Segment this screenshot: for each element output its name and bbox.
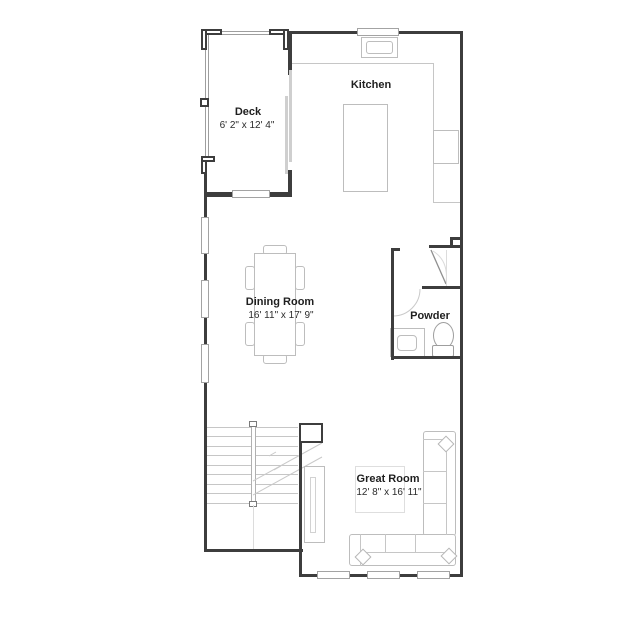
wall-deck-right-lower bbox=[288, 170, 292, 196]
window bbox=[201, 217, 209, 254]
tv-screen bbox=[310, 477, 316, 533]
sofa-cushion-line bbox=[423, 503, 446, 504]
wall-hall-left-return bbox=[391, 248, 400, 251]
wall-right bbox=[460, 31, 463, 577]
room-dims-deck: 6' 2" x 12' 4" bbox=[187, 120, 307, 132]
window bbox=[367, 571, 400, 579]
window bbox=[232, 190, 270, 198]
sofa-back-line bbox=[360, 552, 446, 553]
wall-great-room-left bbox=[299, 424, 302, 577]
stair-wall-column bbox=[299, 423, 323, 443]
wall-bottom-stairs bbox=[204, 549, 303, 552]
wall-hall-top bbox=[429, 245, 463, 248]
deck-post bbox=[201, 29, 207, 50]
closet-door-edge bbox=[446, 250, 447, 286]
deck-post bbox=[201, 156, 215, 162]
window bbox=[201, 280, 209, 318]
room-dims-dining: 16' 11" x 17' 9" bbox=[221, 310, 341, 322]
window bbox=[317, 571, 350, 579]
wall-powder-top bbox=[422, 286, 463, 289]
sofa-cushion-line bbox=[423, 471, 446, 472]
powder-sink bbox=[397, 335, 417, 351]
closet-door-arc bbox=[433, 251, 446, 283]
dining-chair bbox=[295, 266, 305, 290]
room-label-dining: Dining Room bbox=[220, 296, 340, 309]
window bbox=[417, 571, 450, 579]
room-label-powder: Powder bbox=[380, 310, 480, 323]
floor-plan: Kitchen Deck 6' 2" x 12' 4" Dining Room … bbox=[0, 0, 640, 640]
stove bbox=[433, 130, 459, 164]
sofa-cushion-line bbox=[415, 534, 416, 552]
kitchen-sink-basin bbox=[366, 41, 393, 54]
wall-powder-bottom bbox=[391, 356, 463, 359]
room-label-deck: Deck bbox=[198, 106, 298, 119]
wall-hall-left bbox=[391, 248, 394, 360]
deck-post bbox=[283, 29, 289, 50]
sofa-cushion-line bbox=[385, 534, 386, 552]
room-label-great: Great Room bbox=[338, 473, 438, 486]
window bbox=[201, 344, 209, 383]
window bbox=[357, 28, 399, 36]
room-label-kitchen: Kitchen bbox=[321, 79, 421, 92]
kitchen-island bbox=[343, 104, 388, 192]
room-dims-great: 12' 8" x 16' 11" bbox=[329, 487, 449, 499]
dining-chair bbox=[295, 322, 305, 346]
stair-arrow-icon bbox=[269, 452, 281, 470]
